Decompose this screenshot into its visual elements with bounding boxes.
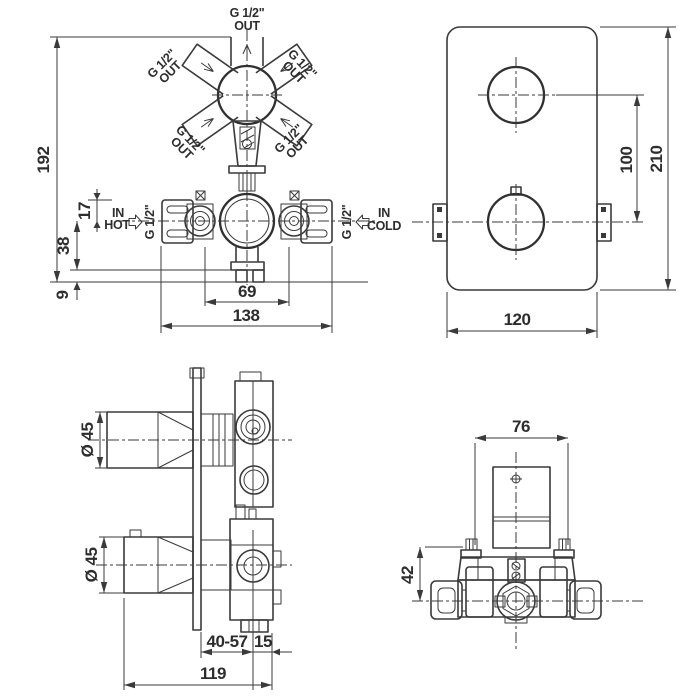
flow-arrow xyxy=(199,116,215,130)
right-mounting-bracket xyxy=(279,191,332,243)
upper-hole-crosshair xyxy=(478,57,556,133)
wall-plate xyxy=(190,368,204,630)
hot-thread-text: G 1/2" xyxy=(143,204,157,239)
cold-in-text: IN xyxy=(378,206,390,220)
dim-text-17: 17 xyxy=(75,202,94,220)
drawing-canvas: G 1/2" OUT G 1/2" OU xyxy=(0,0,700,700)
cold-inlet-label: G 1/2" IN COLD xyxy=(340,204,401,239)
dim-text-210: 210 xyxy=(647,146,666,173)
outlet-label-top-flow: OUT xyxy=(234,19,260,33)
dim-text-120: 120 xyxy=(504,310,531,329)
hot-inlet-label: IN HOT G 1/2" xyxy=(104,204,157,239)
flow-arrow xyxy=(199,60,215,74)
left-mounting-bracket xyxy=(162,191,215,243)
dim-76: 76 xyxy=(475,417,568,545)
dim-text-40-57: 40-57 xyxy=(207,632,248,651)
lower-handle xyxy=(124,530,193,593)
cold-temp-text: COLD xyxy=(367,219,401,233)
dim-text-119: 119 xyxy=(200,664,226,683)
dim-upper-diameter: Ø 45 xyxy=(78,412,110,468)
dim-text-42: 42 xyxy=(398,566,417,584)
outlet-label-lower-right: G 1/2" OUT xyxy=(272,121,315,164)
flow-arrow-up xyxy=(243,45,251,59)
dim-text-69: 69 xyxy=(238,282,256,301)
faceplate-view: 100 210 120 xyxy=(412,27,676,338)
lower-valve-body xyxy=(230,505,281,632)
hot-flow-arrow-icon xyxy=(129,215,142,229)
right-fixing-bolt xyxy=(554,539,574,558)
left-fixing-bolt xyxy=(461,539,481,558)
dim-total-depth: 119 xyxy=(124,598,272,690)
outlet-label-top-thread: G 1/2" xyxy=(230,6,265,20)
outlet-pipe-upper-left xyxy=(182,44,238,94)
dim-text-100: 100 xyxy=(617,147,636,174)
dim-text-15: 15 xyxy=(254,632,272,651)
dim-120: 120 xyxy=(447,292,597,338)
dim-text-diam-upper: Ø 45 xyxy=(78,423,97,458)
upper-handle-hole xyxy=(488,67,544,123)
outlet-label-upper-left: G 1/2" OUT xyxy=(145,46,188,89)
side-view: Ø 45 Ø 45 40-57 15 119 xyxy=(78,368,292,690)
technical-drawing: G 1/2" OUT G 1/2" OU xyxy=(0,0,700,700)
dim-9: 9 xyxy=(53,282,81,300)
dim-100: 100 xyxy=(556,95,644,222)
dim-210: 210 xyxy=(600,27,676,290)
cold-thread-text: G 1/2" xyxy=(340,204,354,239)
dim-text-192: 192 xyxy=(34,147,53,174)
protection-cover xyxy=(493,467,550,548)
top-outlet-pipe xyxy=(231,37,263,66)
front-view: G 1/2" OUT G 1/2" OU xyxy=(34,6,401,333)
dim-text-38: 38 xyxy=(54,237,73,255)
top-view: 76 xyxy=(398,417,646,650)
outlet-label-lower-left: G 1/2" OUT xyxy=(165,123,208,166)
dim-text-76: 76 xyxy=(512,417,530,436)
faceplate-outline xyxy=(447,27,597,290)
hot-temp-text: HOT xyxy=(104,218,130,232)
dim-text-138: 138 xyxy=(233,306,260,325)
dim-text-diam-lower: Ø 45 xyxy=(82,548,101,583)
dim-text-9: 9 xyxy=(53,290,72,299)
